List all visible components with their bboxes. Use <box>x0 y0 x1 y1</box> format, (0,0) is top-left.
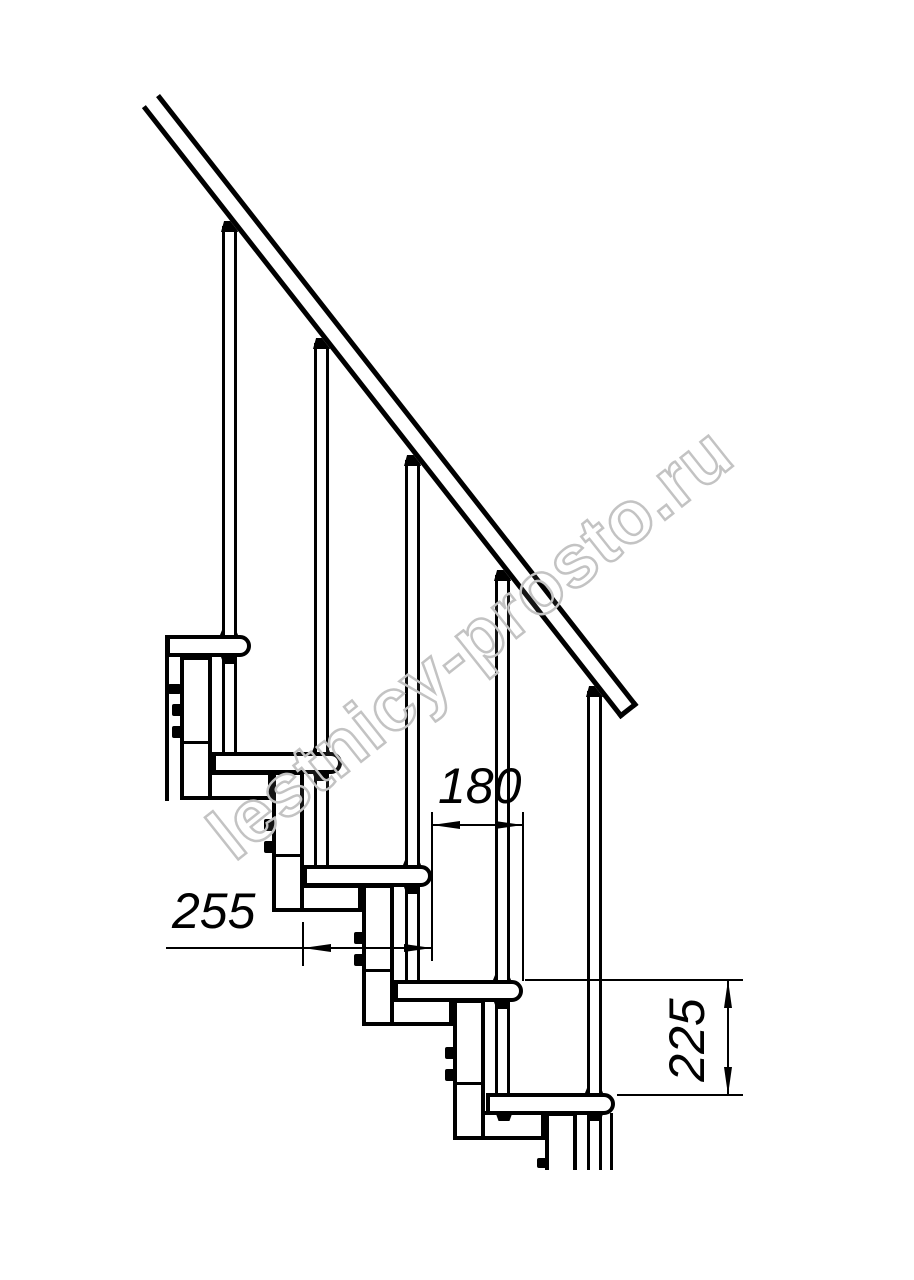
arrow-left-icon <box>432 821 460 829</box>
support-column-5 <box>545 1112 577 1170</box>
column-joint-2 <box>272 854 304 857</box>
dimension-line-255 <box>166 947 432 949</box>
bolt-icon <box>537 1158 547 1168</box>
extension-line <box>431 812 433 961</box>
tread-3 <box>303 865 432 887</box>
arrow-left-icon <box>303 944 331 952</box>
bolt-icon <box>354 932 364 944</box>
tread-rod-3 <box>405 885 420 981</box>
column-joint-4 <box>453 1082 485 1085</box>
left-cropped-bracket <box>168 684 181 694</box>
rod-nut <box>496 1114 512 1121</box>
baluster-1 <box>222 226 237 635</box>
support-column-1 <box>180 656 212 800</box>
rod-nut <box>221 657 237 664</box>
bolt-icon <box>445 1069 455 1081</box>
dim-label-255: 255 <box>172 886 255 936</box>
column-joint-1 <box>180 741 212 744</box>
column-joint-3 <box>362 969 394 972</box>
arrow-up-icon <box>724 980 732 1008</box>
support-column-3 <box>362 884 394 1026</box>
tread-4 <box>394 980 523 1002</box>
lower-structure-line <box>610 1113 613 1170</box>
baluster-2 <box>314 343 329 752</box>
tread-1 <box>166 635 251 657</box>
bolt-icon <box>445 1047 455 1059</box>
tread-5 <box>486 1093 615 1115</box>
bolt-icon <box>172 726 182 738</box>
left-cut-edge <box>165 635 169 801</box>
tread-rod-5 <box>587 1113 602 1170</box>
arrow-down-icon <box>724 1067 732 1095</box>
extension-line <box>522 812 524 981</box>
tread-rod-1 <box>222 656 237 753</box>
arrow-right-icon <box>495 821 523 829</box>
handrail <box>142 94 639 719</box>
dim-label-225: 225 <box>662 980 712 1100</box>
bolt-icon <box>354 954 364 966</box>
rod-nut <box>587 1114 603 1121</box>
staircase-drawing: 180 255 225 lestnicy-prosto.ru <box>0 0 914 1280</box>
tread-rod-4 <box>495 1000 510 1094</box>
bolt-icon <box>172 704 182 716</box>
rod-nut <box>404 887 420 894</box>
rod-nut <box>494 1002 510 1009</box>
dim-label-180: 180 <box>438 761 521 811</box>
baluster-5 <box>587 691 602 1093</box>
support-column-4 <box>453 999 485 1140</box>
arrow-right-icon <box>404 944 432 952</box>
